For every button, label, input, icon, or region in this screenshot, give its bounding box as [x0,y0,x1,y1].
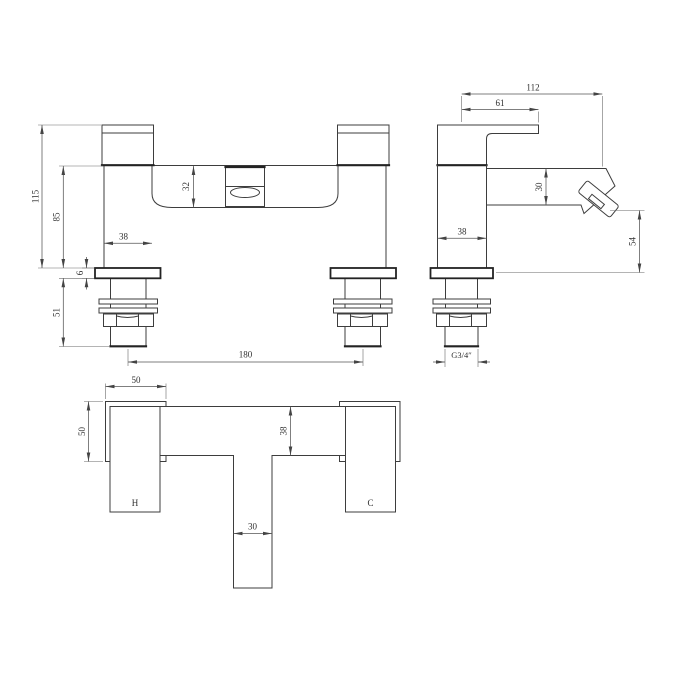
dim-6: 6 [75,270,85,275]
dim-38-plan: 38 [279,426,289,436]
dim-38-side: 38 [458,227,468,237]
side-washer-1 [433,299,491,304]
hot-label: H [132,498,139,508]
dim-thread: G3/4″ [451,350,472,360]
dim-51: 51 [52,308,62,317]
front-dimensions: 115 85 51 6 38 32 180 [31,125,364,366]
dim-180: 180 [239,350,253,360]
left-inlet-tail [111,327,147,347]
front-right-handle [338,125,390,166]
left-backnut [104,314,154,327]
side-inlet-tail [445,327,478,347]
side-shank [431,268,494,347]
left-base-flange [95,268,161,278]
technical-drawing-page: 115 85 51 6 38 32 180 [0,0,675,675]
right-washer-1 [334,299,393,304]
dim-54: 54 [628,237,638,247]
dim-32: 32 [181,182,191,191]
front-view: 115 85 51 6 38 32 180 [31,125,397,366]
dim-30-plan: 30 [248,522,258,532]
dim-61: 61 [496,98,505,108]
right-inlet-tail [345,327,381,347]
front-left-handle [102,125,154,166]
side-body [438,166,487,269]
front-diverter-block [226,166,265,207]
dim-38-front: 38 [119,232,129,242]
right-backnut [338,314,388,327]
plan-body [160,407,346,456]
side-backnut [437,314,487,327]
plan-right-valve: C [346,407,396,513]
plan-left-valve: H [110,407,160,513]
right-base-flange [331,268,397,278]
side-view: 112 61 30 38 54 G3/4″ [431,83,645,368]
cold-label: C [367,498,373,508]
left-washer-2 [99,308,158,313]
side-base-flange [431,268,494,278]
front-left-shank [95,268,161,347]
dim-112: 112 [526,83,539,93]
plan-view: H C 50 50 38 30 [77,375,400,588]
dim-50-depth: 50 [77,427,87,437]
dim-50-width: 50 [132,375,142,385]
front-right-shank [331,268,397,347]
dim-30-side: 30 [534,182,544,192]
side-spout [487,169,620,218]
dim-85: 85 [52,212,62,222]
dim-115: 115 [31,189,41,203]
side-washer-2 [433,308,491,313]
side-handle [438,125,539,166]
right-washer-2 [334,308,393,313]
left-washer-1 [99,299,158,304]
bath-tap-technical-drawing: 115 85 51 6 38 32 180 [0,0,675,675]
